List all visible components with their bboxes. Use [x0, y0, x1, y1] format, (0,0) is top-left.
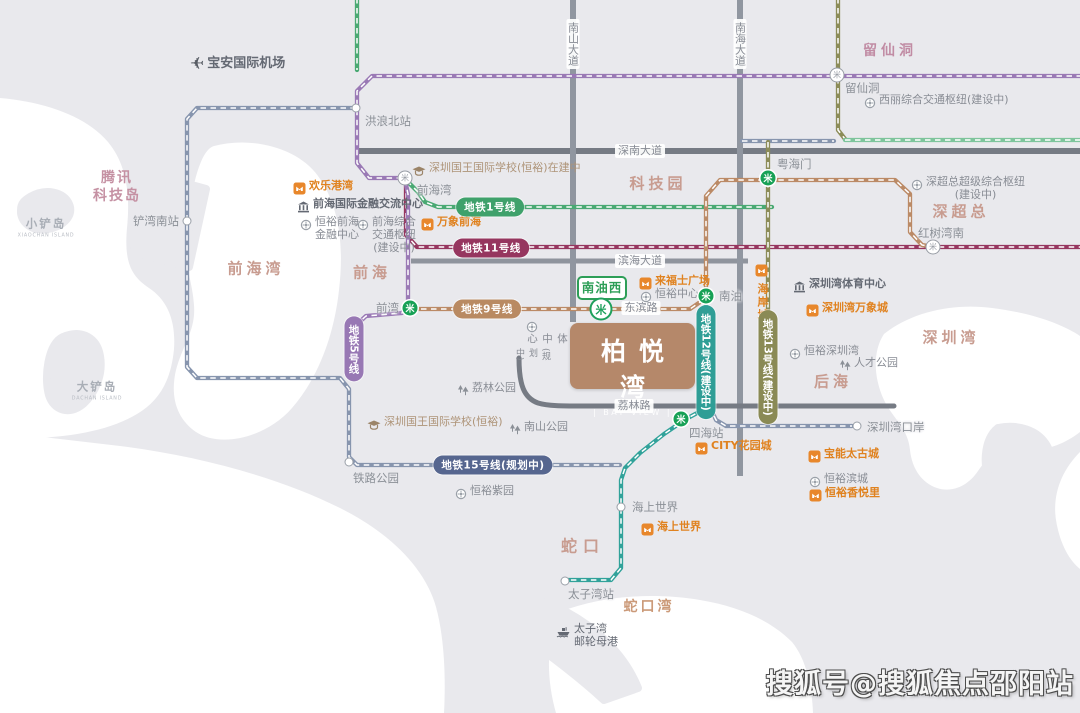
landmark-label-line: 深圳湾万象城 — [822, 302, 888, 315]
poi-dot-icon — [640, 288, 652, 307]
metro-station-label: 洪浪北站 — [365, 113, 411, 129]
metro-line-badge: 地铁13号线(建设中) — [759, 310, 778, 424]
landmark-label-line: 交通枢纽 — [372, 229, 416, 242]
landmark-orange: 宝能太古城 — [808, 448, 879, 467]
airplane-icon: ✈ — [190, 56, 204, 73]
mall-icon — [695, 440, 708, 459]
metro-line-badge: 地铁1号线 — [456, 198, 524, 217]
metro-station-label: 留仙洞 — [845, 80, 880, 96]
poi-dot-icon — [300, 216, 312, 235]
metro-station-label: 南油 — [719, 288, 742, 304]
landmark-label: 恒裕紫园 — [470, 485, 514, 498]
metro-station-label: 铁路公园 — [353, 470, 399, 486]
landmark-label-line: 恒裕滨城 — [824, 473, 868, 486]
metro-station-marker: 米 — [398, 171, 413, 186]
road-label: 南山大道 — [567, 19, 580, 69]
area-label: 深圳湾 — [922, 328, 979, 348]
landmark-label-line: CITY花园城 — [711, 440, 772, 453]
park-tree-icon — [509, 421, 521, 440]
metro-station-marker — [183, 217, 192, 226]
metro-station-marker — [561, 577, 570, 586]
road-label: 深南大道 — [615, 144, 665, 158]
metro-station-label: 红树湾南 — [918, 225, 964, 241]
metro-line-badge: 地铁11号线 — [453, 239, 529, 258]
metro-station-marker — [352, 104, 361, 113]
landmark-dot: 前海综合交通枢纽(建设中) — [357, 216, 416, 255]
landmark-label: 海上世界 — [657, 521, 701, 534]
poi-dot-icon — [911, 176, 923, 195]
metro-station-marker: 米 — [761, 171, 776, 186]
metro-station-marker — [853, 422, 862, 431]
nanyouxi-station-badge: 南油西 — [577, 276, 627, 300]
landmark-label: 宝能太古城 — [824, 448, 879, 461]
area-label: 前海 — [353, 263, 391, 283]
landmark-label-line: 南山公园 — [524, 421, 568, 434]
metro-station-label: 四海站 — [689, 425, 724, 441]
landmark-label: 欢乐港湾 — [309, 180, 353, 193]
area-label: 蛇口 — [561, 537, 605, 558]
metro-line-badge: 地铁12号线(建设中) — [697, 305, 716, 419]
area-label: 腾讯科技岛 — [93, 169, 141, 205]
mall-icon — [293, 180, 306, 199]
landmark-dot: 西丽综合交通枢纽(建设中) — [864, 94, 1009, 113]
school-cap-icon — [367, 416, 381, 435]
landmark-label-line: 恒裕香悦里 — [825, 487, 880, 500]
metro-line-badge: 地铁5号线 — [345, 316, 364, 381]
landmark-label: 恒裕滨城 — [824, 473, 868, 486]
mall-icon — [809, 487, 822, 506]
mall-icon — [808, 448, 821, 467]
area-label-text: 科技园 — [629, 174, 686, 194]
metro-station-marker: 米 — [699, 289, 714, 304]
landmark-bldg: 深圳湾体育中心 — [793, 278, 886, 297]
landmark-label-line: 恒裕紫园 — [470, 485, 514, 498]
bayview-subtitle: | BAY VIEW | — [570, 408, 695, 417]
landmark-label: 恒裕香悦里 — [825, 487, 880, 500]
metro-station-label: 粤海门 — [777, 156, 812, 172]
mall-icon — [806, 302, 819, 321]
watermark: 搜狐号@搜狐焦点邵阳站 — [766, 662, 1074, 701]
landmark-label: 深圳国王国际学校(恒裕)在建中 — [429, 162, 581, 175]
metro-station-label: 前海湾 — [417, 182, 452, 198]
landmark-label: 深超总超级综合枢纽(建设中) — [926, 176, 1025, 202]
metro-line-badge: 地铁15号线(规划中) — [433, 456, 552, 475]
landmark-label: 人才公园 — [854, 357, 898, 370]
landmark-label: 深圳湾体育中心 — [809, 278, 886, 291]
mall-icon — [641, 521, 654, 540]
landmark-orange: 深圳湾万象城 — [806, 302, 888, 321]
map-label-layer: 深南大道滨海大道荔林路东滨路南山大道南海大道腾讯科技岛小铲岛XIAOCHAN I… — [0, 0, 1080, 713]
landmark-dot: 深超总超级综合枢纽(建设中) — [911, 176, 1025, 202]
area-label: 前海湾 — [227, 259, 284, 279]
landmark-label-line: (建设中) — [372, 242, 416, 255]
poi-dot-icon — [455, 485, 467, 504]
area-label-text: 前海 — [353, 263, 391, 283]
area-label-text: 腾讯 — [93, 169, 141, 187]
cruise-ship-icon — [556, 623, 571, 642]
area-label-text: 蛇口 — [561, 537, 605, 558]
landmark-label: 荔林公园 — [472, 382, 516, 395]
landmark-label: 深圳国王国际学校(恒裕) — [384, 416, 503, 429]
poi-dot-icon — [864, 94, 876, 113]
landmark-label: 万象前海 — [437, 216, 481, 229]
park-tree-icon — [457, 382, 469, 401]
landmark-label-line: 恒裕中心 — [655, 288, 699, 301]
shenzhen-metro-logo-icon: 米 — [590, 298, 613, 321]
landmark-tree: 人才公园 — [839, 357, 898, 376]
landmark-label-line: 深圳湾体育中心 — [809, 278, 886, 291]
area-label: 大铲岛DACHAN ISLAND — [66, 380, 129, 403]
landmark-orange: CITY花园城 — [695, 440, 772, 459]
landmark-label-line: 宝能太古城 — [824, 448, 879, 461]
area-label-subtext: XIAOCHAN ISLAND — [18, 232, 75, 238]
landmark-label: 宝安国际机场 — [207, 56, 285, 71]
bayview-project-logo: 柏悦湾 | BAY VIEW | — [570, 323, 695, 389]
area-label: 小铲岛XIAOCHAN ISLAND — [10, 217, 81, 240]
landmark-label-line: 深圳国王国际学校(恒裕)在建中 — [429, 162, 581, 175]
landmark-ship: 太子湾邮轮母港 — [556, 623, 618, 649]
landmark-tree: 南山公园 — [509, 421, 568, 440]
landmark-label-line: 宝安国际机场 — [207, 56, 285, 71]
school-cap-icon — [412, 162, 426, 181]
landmark-school: 深圳国王国际学校(恒裕)在建中 — [412, 162, 581, 181]
landmark-dot: 恒裕紫园 — [455, 485, 514, 504]
road-label: 滨海大道 — [615, 254, 665, 268]
landmark-label-line: 万象前海 — [437, 216, 481, 229]
metro-station-label: 深圳湾口岸 — [867, 419, 925, 435]
landmark-label: CITY花园城 — [711, 440, 772, 453]
landmark-label: 恒裕前海金融中心 — [315, 216, 359, 242]
road-label: 南海大道 — [734, 19, 747, 69]
mall-icon — [755, 262, 768, 281]
landmark-orange: 海上世界 — [641, 521, 701, 540]
landmark-tree: 荔林公园 — [457, 382, 516, 401]
landmark-label-line: (建设中) — [926, 189, 1025, 202]
metro-station-label: 海上世界 — [632, 499, 678, 515]
area-label-text: 小铲岛 — [10, 217, 81, 232]
building-icon — [793, 278, 806, 297]
area-label-text: 蛇口湾 — [624, 598, 675, 616]
landmark-label-line: 深圳国王国际学校(恒裕) — [384, 416, 503, 429]
landmark-label: 前海国际金融交流中心 — [313, 198, 423, 211]
bayview-title: 柏悦湾 — [570, 332, 695, 404]
landmark-label-line: 前海国际金融交流中心 — [313, 198, 423, 211]
area-label-text: 深超总 — [932, 202, 989, 222]
area-label-text: 大铲岛 — [66, 380, 129, 395]
metro-station-marker: 米 — [403, 301, 418, 316]
metro-station-marker: 米 — [926, 240, 941, 255]
poi-dot-icon — [789, 345, 801, 364]
area-label: 深超总 — [932, 202, 989, 222]
location-map: 深南大道滨海大道荔林路东滨路南山大道南海大道腾讯科技岛小铲岛XIAOCHAN I… — [0, 0, 1080, 713]
landmark-dot: 恒裕中心 — [640, 288, 699, 307]
area-label: 留仙洞 — [863, 42, 917, 60]
landmark-label: 南山公园 — [524, 421, 568, 434]
landmark-orange: 万象前海 — [421, 216, 481, 235]
metro-station-label: 前湾 — [376, 300, 399, 316]
landmark-label: 恒裕中心 — [655, 288, 699, 301]
area-label-text: 留仙洞 — [863, 42, 917, 60]
landmark-plane: ✈宝安国际机场 — [190, 56, 285, 73]
landmark-label: 西丽综合交通枢纽(建设中) — [879, 94, 1009, 107]
landmark-orange: 恒裕香悦里 — [809, 487, 880, 506]
mall-icon — [421, 216, 434, 235]
area-label-text: 深圳湾 — [922, 328, 979, 348]
metro-station-marker — [345, 458, 354, 467]
landmark-label-line: 西丽综合交通枢纽(建设中) — [879, 94, 1009, 107]
landmark-label: 深圳湾万象城 — [822, 302, 888, 315]
building-icon — [297, 198, 310, 217]
landmark-label-line: 邮轮母港 — [574, 636, 618, 649]
landmark-dot: 恒裕前海金融中心 — [300, 216, 359, 242]
area-label: 科技园 — [629, 174, 686, 194]
landmark-label-line: 荔林公园 — [472, 382, 516, 395]
landmark-label: 太子湾邮轮母港 — [574, 623, 618, 649]
metro-station-marker — [617, 503, 626, 512]
area-label-text: 前海湾 — [227, 259, 284, 279]
metro-station-label: 铲湾南站 — [133, 213, 179, 229]
landmark-label-line: 海上世界 — [657, 521, 701, 534]
poi-dot-icon — [357, 216, 369, 235]
metro-line-badge: 地铁9号线 — [453, 300, 521, 319]
landmark-label-line: 人才公园 — [854, 357, 898, 370]
landmark-school: 深圳国王国际学校(恒裕) — [367, 416, 503, 435]
area-label: 蛇口湾 — [624, 598, 675, 616]
landmark-label: 前海综合交通枢纽(建设中) — [372, 216, 416, 255]
landmark-label-annotation: (规划中) — [513, 348, 552, 361]
metro-station-marker: 米 — [830, 68, 845, 83]
park-tree-icon — [839, 357, 851, 376]
area-label-text: 科技岛 — [93, 187, 141, 205]
area-label-subtext: DACHAN ISLAND — [72, 395, 122, 401]
landmark-label-line: 金融中心 — [315, 229, 359, 242]
metro-station-label: 太子湾站 — [568, 586, 614, 602]
landmark-label-line: 欢乐港湾 — [309, 180, 353, 193]
